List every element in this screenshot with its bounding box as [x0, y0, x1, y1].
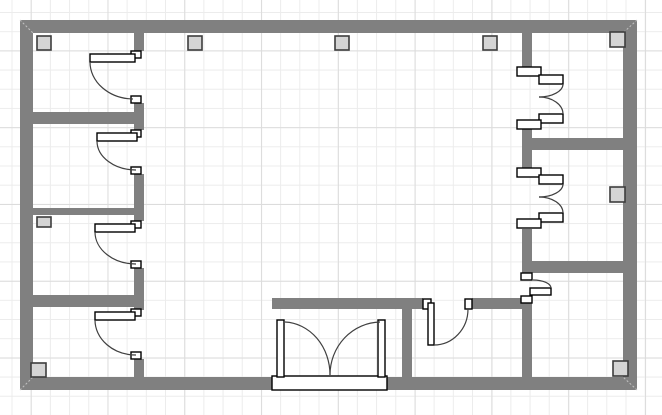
- door-bottom-partition[interactable]: [423, 299, 472, 345]
- door-room-2[interactable]: [97, 130, 141, 174]
- double-entry-door-leaf: [277, 320, 284, 377]
- double-entry-door-leaf: [272, 376, 387, 390]
- double-door-mid-right-swing-arc: [539, 197, 563, 213]
- door-room-4-leaf: [95, 312, 135, 320]
- double-entry-door[interactable]: [272, 320, 387, 390]
- door-lower-right-leaf: [530, 288, 551, 295]
- door-lower-right-leaf: [521, 273, 532, 280]
- door-room-3-swing-arc: [95, 232, 136, 264]
- wall-right-core-b[interactable]: [522, 129, 532, 168]
- wall-right-divider-2[interactable]: [532, 261, 623, 273]
- column[interactable]: [37, 36, 51, 50]
- door-lower-right-leaf: [521, 296, 532, 303]
- column[interactable]: [610, 32, 625, 47]
- wall-outer-bottom-left[interactable]: [20, 377, 272, 390]
- double-door-upper-right-leaf: [539, 75, 563, 84]
- column[interactable]: [31, 363, 46, 377]
- door-lower-right[interactable]: [521, 273, 551, 303]
- wall-bottom-partition-h1[interactable]: [272, 298, 423, 309]
- wall-right-core-d[interactable]: [522, 303, 532, 377]
- floorplan-drawing: [0, 0, 662, 415]
- door-room-4-swing-arc: [95, 320, 136, 355]
- floorplan-canvas[interactable]: [0, 0, 662, 415]
- double-door-upper-right-swing-arc: [539, 84, 563, 97]
- door-bottom-partition-leaf: [465, 299, 472, 309]
- door-room-3[interactable]: [95, 221, 141, 268]
- double-entry-door-leaf: [378, 320, 385, 377]
- double-door-upper-right-leaf: [517, 67, 541, 76]
- door-room-1-swing-arc: [90, 62, 133, 99]
- column[interactable]: [188, 36, 202, 50]
- column[interactable]: [335, 36, 349, 50]
- column[interactable]: [37, 217, 51, 227]
- door-room-2-leaf: [97, 133, 137, 141]
- double-entry-door-swing-arc: [330, 322, 380, 375]
- door-bottom-partition-leaf: [428, 303, 434, 345]
- door-room-2-swing-arc: [97, 141, 136, 170]
- wall-outer-right[interactable]: [623, 20, 637, 390]
- double-door-mid-right-leaf: [517, 168, 541, 177]
- double-door-upper-right-leaf: [517, 120, 541, 129]
- column[interactable]: [610, 187, 625, 202]
- door-room-1-leaf: [90, 54, 135, 62]
- wall-bottom-partition-h2[interactable]: [472, 298, 522, 309]
- door-room-4[interactable]: [95, 309, 141, 359]
- double-door-mid-right-leaf: [517, 219, 541, 228]
- wall-right-divider-1[interactable]: [532, 138, 623, 150]
- double-door-mid-right[interactable]: [517, 168, 563, 228]
- wall-bottom-partition-v[interactable]: [402, 309, 412, 377]
- wall-outer-top[interactable]: [20, 20, 637, 33]
- double-door-mid-right-leaf: [539, 213, 563, 222]
- wall-left-core-e[interactable]: [134, 359, 144, 377]
- wall-outer-left[interactable]: [20, 20, 33, 390]
- double-door-upper-right[interactable]: [517, 67, 563, 129]
- wall-left-core-a[interactable]: [134, 33, 144, 51]
- double-door-mid-right-leaf: [539, 175, 563, 184]
- door-room-1[interactable]: [90, 51, 141, 103]
- double-entry-door-swing-arc: [285, 322, 330, 375]
- door-lower-right-swing-arc: [533, 280, 551, 288]
- door-bottom-partition-swing-arc: [434, 309, 468, 345]
- wall-left-divider-2-thin[interactable]: [33, 208, 144, 215]
- door-room-3-leaf: [95, 224, 135, 232]
- wall-right-core-a[interactable]: [522, 33, 532, 67]
- double-door-upper-right-swing-arc: [539, 97, 563, 114]
- wall-outer-bottom-right[interactable]: [387, 377, 637, 390]
- wall-left-divider-1[interactable]: [33, 112, 144, 124]
- wall-left-divider-3[interactable]: [33, 295, 144, 307]
- double-door-mid-right-swing-arc: [539, 184, 563, 197]
- wall-right-core-c[interactable]: [522, 229, 532, 273]
- column[interactable]: [613, 361, 628, 376]
- column[interactable]: [483, 36, 497, 50]
- double-door-upper-right-leaf: [539, 114, 563, 123]
